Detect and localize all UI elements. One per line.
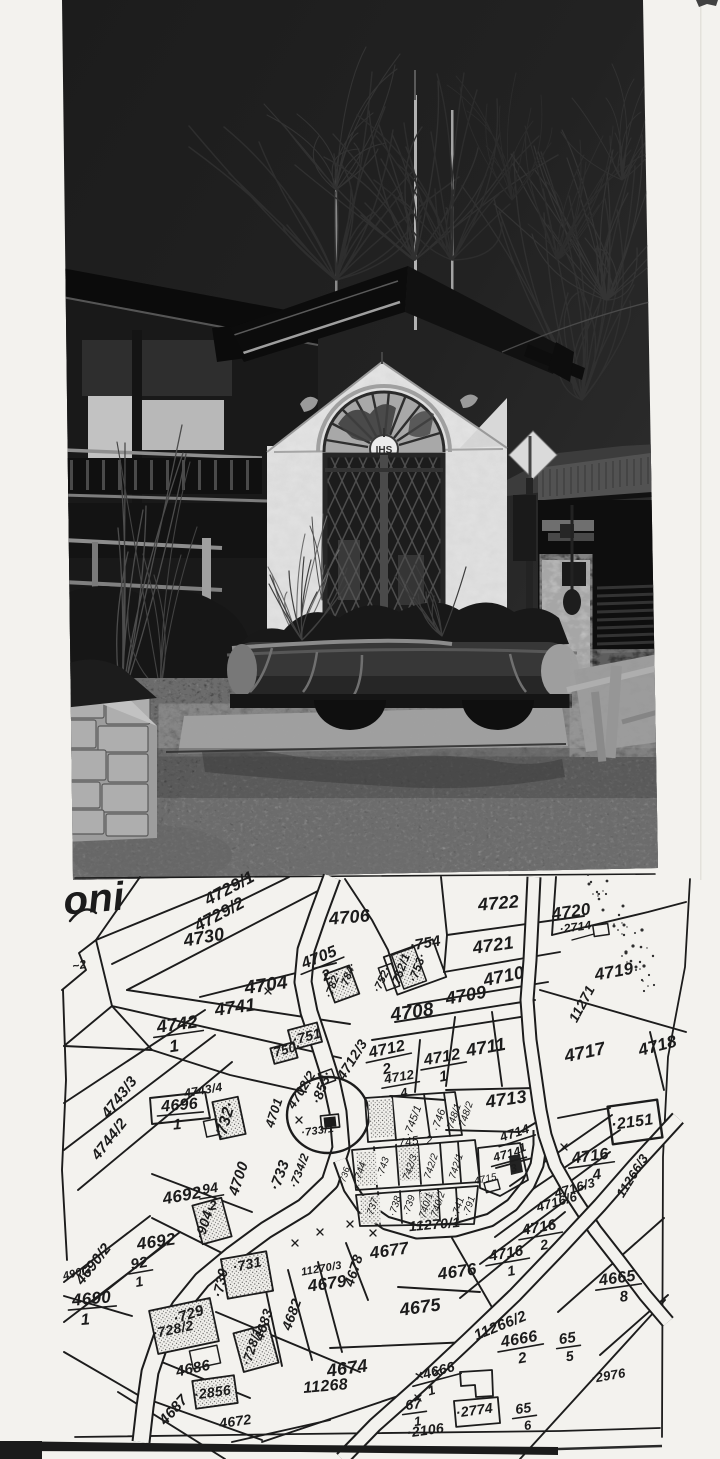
svg-text:65: 65 xyxy=(514,1399,532,1417)
svg-text:1: 1 xyxy=(172,1116,182,1134)
svg-text:65: 65 xyxy=(558,1329,578,1348)
svg-text:4722: 4722 xyxy=(476,891,520,915)
svg-text:94: 94 xyxy=(201,1179,220,1198)
svg-text:...: ... xyxy=(600,1442,607,1451)
svg-text:4706: 4706 xyxy=(327,905,372,929)
svg-text:~2: ~2 xyxy=(71,957,88,973)
svg-text:67: 67 xyxy=(404,1395,423,1413)
svg-text:1: 1 xyxy=(80,1311,91,1329)
svg-text:oni: oni xyxy=(62,874,127,923)
